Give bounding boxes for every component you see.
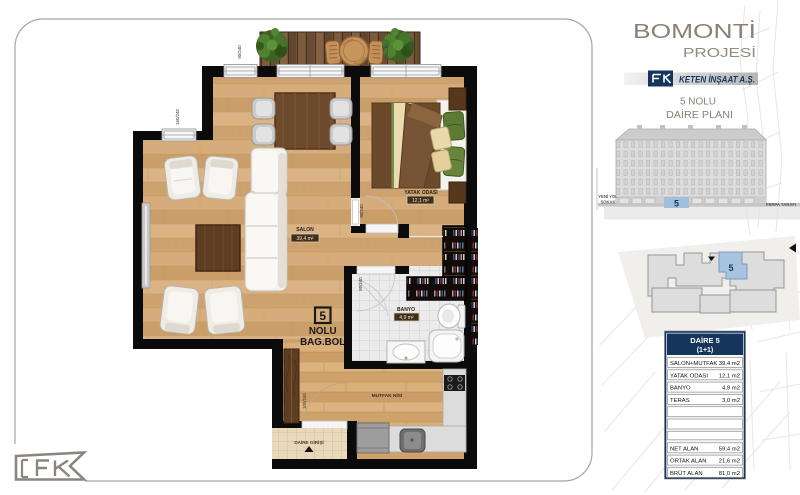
- svg-text:5 NOLU: 5 NOLU: [680, 96, 716, 108]
- svg-text:YATAK ODASI: YATAK ODASI: [404, 190, 438, 196]
- svg-text:90/240: 90/240: [359, 204, 364, 218]
- svg-text:BOMONTİ: BOMONTİ: [633, 20, 756, 43]
- svg-text:4,9 m2: 4,9 m2: [722, 386, 740, 392]
- svg-text:NET ALAN: NET ALAN: [670, 446, 698, 452]
- svg-text:TERAS: TERAS: [670, 398, 690, 404]
- svg-text:3,0 m2: 3,0 m2: [722, 398, 740, 404]
- svg-text:160/240: 160/240: [175, 109, 180, 125]
- svg-text:SOKAK: SOKAK: [600, 200, 615, 205]
- svg-text:39,4 m2: 39,4 m2: [719, 361, 740, 367]
- svg-text:100/240: 100/240: [302, 393, 307, 409]
- svg-text:PERPA TARAFI: PERPA TARAFI: [766, 202, 796, 207]
- svg-text:NOLU: NOLU: [309, 326, 337, 337]
- svg-text:BANYO: BANYO: [670, 386, 691, 392]
- svg-text:4,9 m²: 4,9 m²: [399, 315, 414, 321]
- svg-text:BANYO: BANYO: [397, 307, 415, 313]
- svg-text:ORTAK ALAN: ORTAK ALAN: [670, 459, 706, 465]
- svg-text:BRÜT ALAN: BRÜT ALAN: [670, 470, 703, 477]
- svg-text:12,1 m2: 12,1 m2: [719, 373, 740, 379]
- svg-text:MUTFAK NİSİ: MUTFAK NİSİ: [372, 392, 403, 399]
- svg-text:PROJESİ: PROJESİ: [683, 45, 756, 60]
- svg-text:KETEN İNŞAAT A.Ş.: KETEN İNŞAAT A.Ş.: [679, 75, 755, 85]
- svg-text:81,0 m2: 81,0 m2: [719, 471, 740, 477]
- svg-text:5: 5: [674, 199, 679, 209]
- svg-text:(1+1): (1+1): [697, 347, 714, 354]
- svg-text:90/240: 90/240: [384, 44, 389, 58]
- svg-text:80/240: 80/240: [358, 277, 363, 291]
- svg-text:59,4 m2: 59,4 m2: [719, 446, 740, 452]
- svg-text:39,4 m²: 39,4 m²: [297, 236, 314, 242]
- svg-text:5: 5: [319, 309, 326, 323]
- svg-text:5: 5: [728, 263, 733, 273]
- svg-text:12,1 m²: 12,1 m²: [412, 198, 429, 204]
- svg-text:90/240: 90/240: [237, 45, 242, 59]
- svg-text:DAİRE GİRİŞİ: DAİRE GİRİŞİ: [294, 439, 323, 445]
- svg-text:BAG.BOL: BAG.BOL: [300, 337, 345, 348]
- svg-text:YATAK ODASI: YATAK ODASI: [670, 373, 708, 379]
- svg-text:YENİ YOL: YENİ YOL: [598, 194, 618, 199]
- svg-text:21,6 m2: 21,6 m2: [719, 459, 740, 465]
- svg-text:DAİRE 5: DAİRE 5: [690, 336, 720, 345]
- svg-text:DAİRE PLANI: DAİRE PLANI: [666, 108, 733, 121]
- svg-text:SALON+MUTFAK: SALON+MUTFAK: [670, 361, 717, 367]
- svg-text:SALON: SALON: [296, 227, 314, 233]
